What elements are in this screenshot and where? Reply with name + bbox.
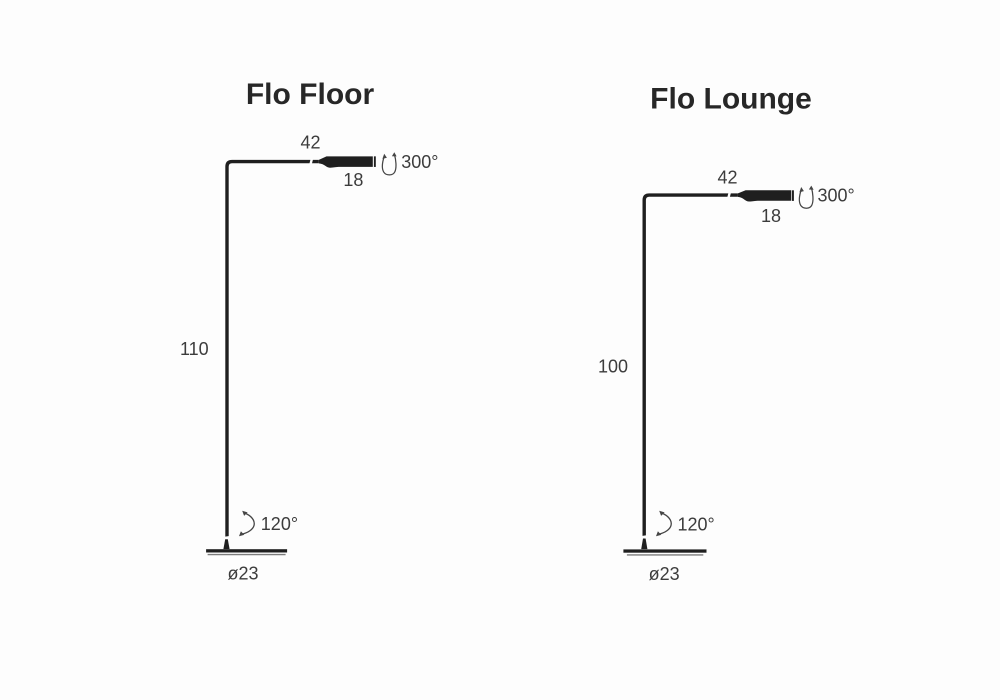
svg-text:42: 42 bbox=[717, 167, 737, 187]
svg-text:42: 42 bbox=[300, 133, 320, 153]
svg-text:18: 18 bbox=[343, 170, 363, 190]
svg-text:100: 100 bbox=[598, 356, 628, 376]
svg-text:ø23: ø23 bbox=[227, 563, 258, 583]
svg-text:120°: 120° bbox=[678, 514, 715, 534]
svg-text:300°: 300° bbox=[401, 152, 438, 172]
svg-text:Flo Floor: Flo Floor bbox=[246, 78, 375, 111]
svg-text:Flo Lounge: Flo Lounge bbox=[650, 82, 812, 115]
svg-text:120°: 120° bbox=[261, 514, 298, 534]
svg-text:300°: 300° bbox=[818, 185, 855, 205]
svg-text:ø23: ø23 bbox=[649, 564, 680, 584]
svg-text:110: 110 bbox=[180, 339, 209, 359]
svg-text:18: 18 bbox=[761, 206, 781, 226]
